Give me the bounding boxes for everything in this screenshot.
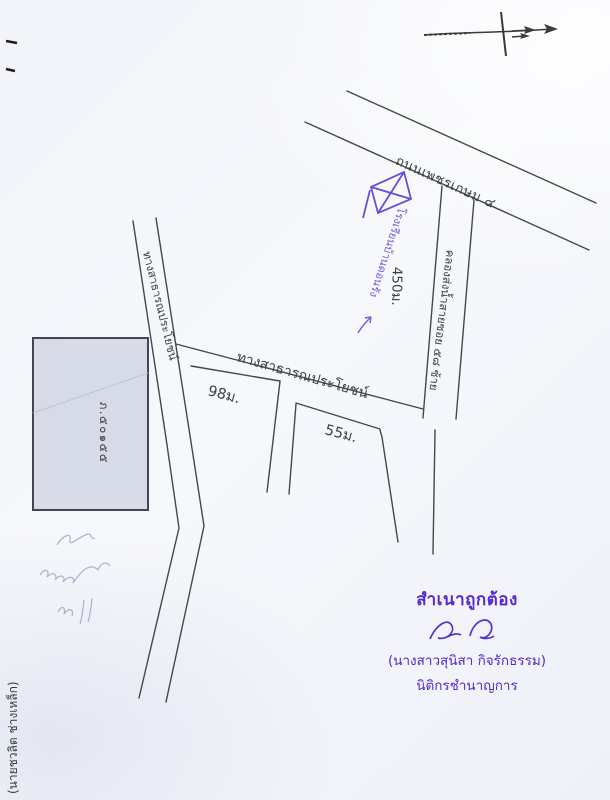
scanned-map-document: ถนนเพชรเกษม ๔ ทางสาธารณประโยชน์ ทางสาธาร… [0,0,610,800]
certification-stamp: สำเนาถูกต้อง (นางสาวสุนิสา กิจรักธรรม) น… [372,586,562,696]
school-note-arrow-icon [358,317,371,333]
parcel-rectangle [33,338,148,510]
side-officer-name-label: (นายชวลิต ช่างเหล็ก) [7,681,19,794]
soi-right-line [289,404,296,494]
compass-north-icon [424,12,558,56]
canal-left-bank-lower [380,430,398,542]
certifier-title: นิติกรชำนาญการ [372,674,562,696]
certifier-name: (นางสาวสุนิสา กิจรักธรรม) [372,649,562,671]
scan-edge-marks [6,41,17,71]
soi-left-line [267,381,280,492]
canal-right-bank-lower [433,430,435,554]
distance-450m-label: 450ม. [389,267,403,306]
canal-right-bank-upper [456,200,474,419]
handwritten-note [40,534,110,624]
certified-copy-heading: สำเนาถูกต้อง [372,586,562,613]
parcel-number-label: ภ.๕๐๑๕๕ [97,402,109,464]
signature-space [372,613,562,647]
